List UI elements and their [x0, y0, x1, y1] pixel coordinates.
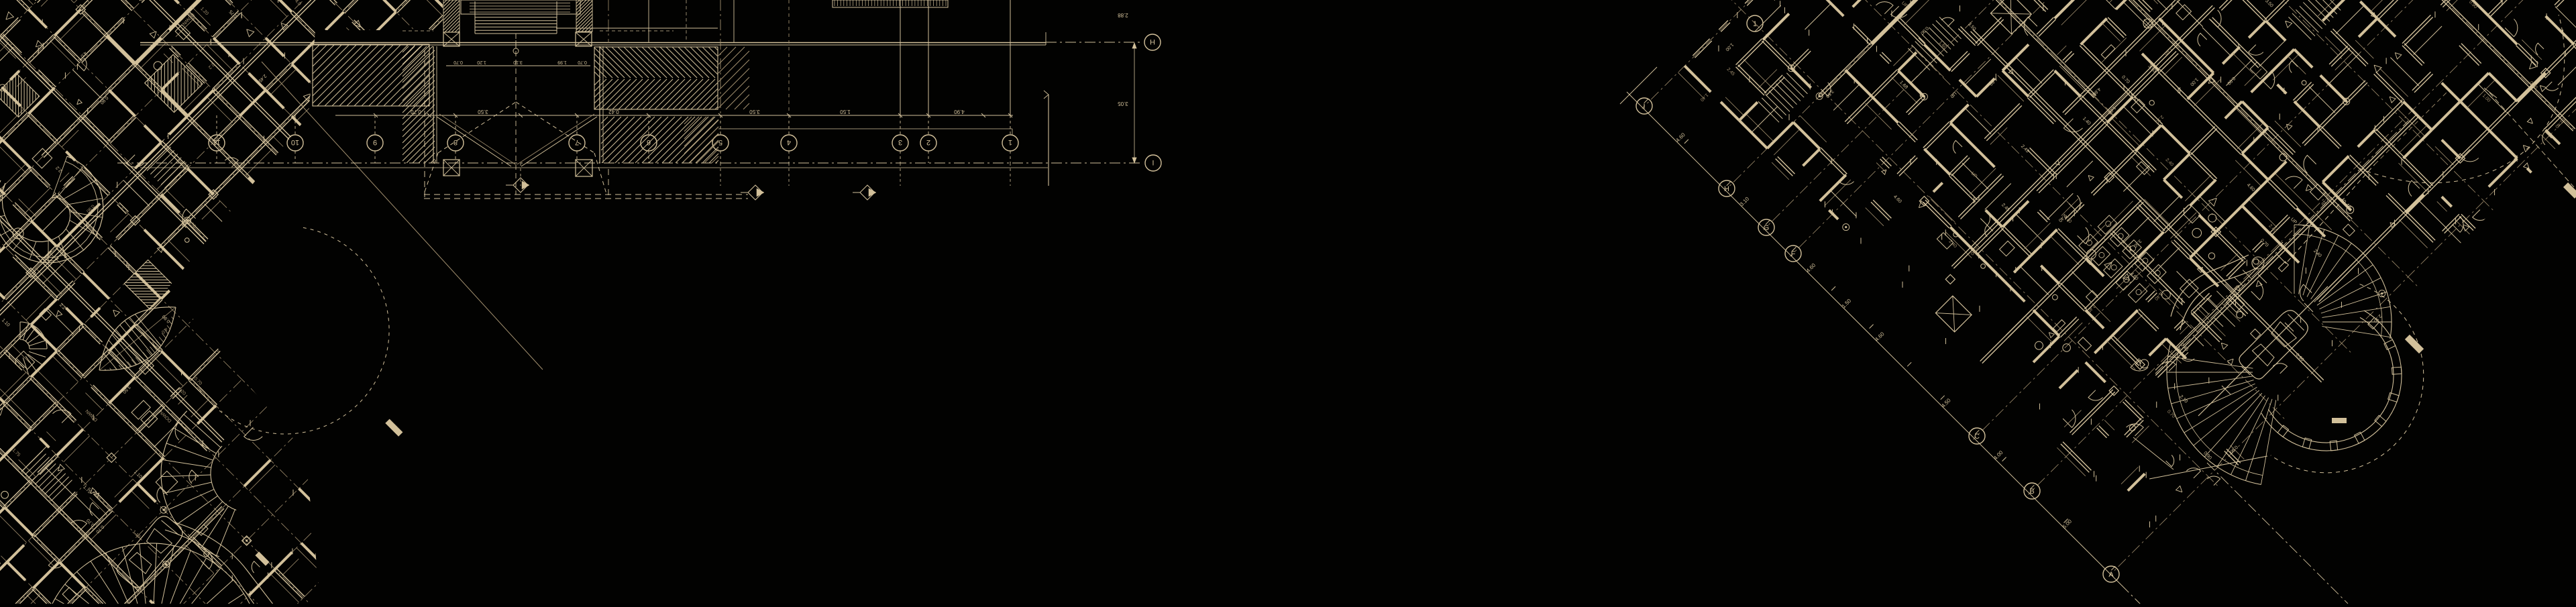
svg-text:I: I [1152, 158, 1154, 166]
svg-text:I: I [1643, 103, 1645, 111]
svg-text:9: 9 [373, 138, 377, 146]
svg-text:G: G [1764, 224, 1770, 232]
svg-text:3.05: 3.05 [1118, 101, 1128, 107]
svg-text:2.88: 2.88 [1118, 12, 1128, 18]
svg-text:1: 1 [1008, 138, 1012, 146]
svg-text:2: 2 [926, 138, 930, 146]
svg-text:3.50: 3.50 [478, 109, 488, 115]
svg-text:F: F [1791, 250, 1796, 258]
svg-text:4: 4 [787, 138, 791, 146]
svg-text:1: 1 [1753, 20, 1757, 28]
svg-text:C: C [1974, 433, 1980, 441]
svg-text:5: 5 [718, 138, 722, 146]
svg-text:8: 8 [453, 138, 458, 146]
svg-text:1.99: 1.99 [557, 60, 567, 64]
svg-text:10: 10 [291, 138, 299, 146]
svg-text:3: 3 [898, 138, 902, 146]
svg-text:H: H [1150, 38, 1155, 46]
svg-text:1.50: 1.50 [840, 109, 851, 115]
svg-text:6: 6 [647, 138, 651, 146]
svg-text:3.50: 3.50 [749, 109, 760, 115]
svg-text:1.20: 1.20 [477, 60, 486, 64]
svg-text:4.90: 4.90 [954, 109, 965, 115]
svg-text:0.70: 0.70 [453, 60, 463, 64]
svg-text:3.10: 3.10 [513, 60, 523, 64]
svg-text:0.70: 0.70 [578, 60, 587, 64]
svg-text:A: A [2108, 571, 2114, 579]
svg-text:B: B [2029, 488, 2034, 496]
svg-text:H: H [1724, 185, 1729, 193]
svg-text:11: 11 [213, 138, 220, 146]
